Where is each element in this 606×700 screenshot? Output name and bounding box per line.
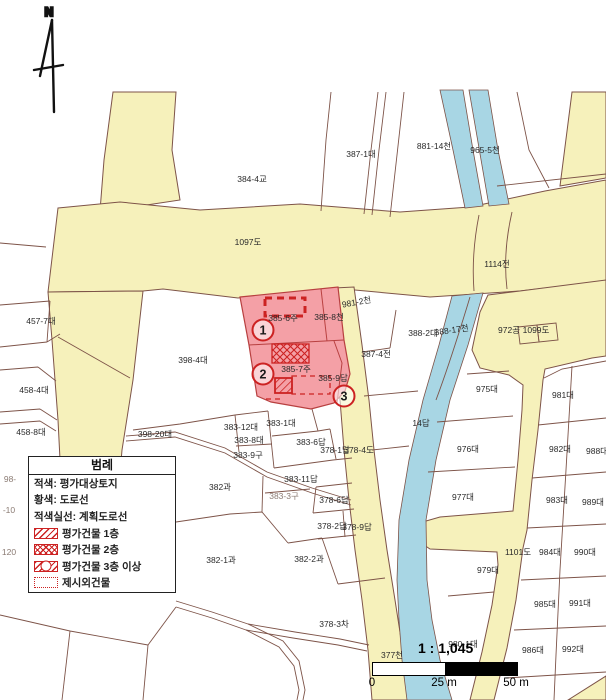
parcel-label: -10 bbox=[3, 505, 16, 515]
parcel-label: 977대 bbox=[452, 492, 474, 502]
parcel-label: 387-1대 bbox=[346, 149, 376, 159]
callout-number: 1 bbox=[260, 324, 267, 338]
parcel-label: 457-7대 bbox=[26, 316, 56, 326]
parcel-label: 1114전 bbox=[484, 259, 509, 269]
parcel-label: 385-8천 bbox=[314, 312, 344, 322]
parcel-label: 982대 bbox=[549, 444, 571, 454]
parcel-label: 383-8대 bbox=[234, 435, 264, 445]
parcel-label: 972공 bbox=[498, 325, 520, 335]
parcel-label: 991대 bbox=[569, 598, 591, 608]
parcel-label: 1101도 bbox=[505, 547, 531, 557]
legend-label: 평가건물 3층 이상 bbox=[62, 559, 141, 574]
parcel-label: 383-12대 bbox=[224, 422, 258, 432]
parcel-label: 988대 bbox=[586, 446, 606, 456]
parcel-label: 378-9답 bbox=[342, 522, 372, 532]
scale-tick-0: 0 bbox=[369, 677, 375, 689]
parcel-label: 992대 bbox=[562, 644, 584, 654]
legend-row: 평가건물 2층 bbox=[29, 541, 175, 558]
legend-swatch-hatch-cross bbox=[34, 544, 58, 555]
legend-label: 적색: 평가대상토지 bbox=[34, 476, 118, 491]
building-1f-hatch bbox=[275, 378, 292, 393]
legend-swatch-dotted-outline bbox=[34, 577, 58, 588]
swatch-circle-icon bbox=[41, 561, 52, 572]
scale-bar-black-segment bbox=[445, 663, 517, 675]
parcel-label: 382-1과 bbox=[206, 555, 236, 565]
scale-bar-white-segment bbox=[373, 663, 445, 675]
legend-row: 황색: 도로선 bbox=[29, 492, 175, 509]
parcel-label: 378-6답 bbox=[319, 495, 349, 505]
parcel-label: 975대 bbox=[476, 384, 498, 394]
parcel-label: 983대 bbox=[546, 495, 568, 505]
parcel-label: 985대 bbox=[534, 599, 556, 609]
legend: 범례 적색: 평가대상토지황색: 도로선적색실선: 계획도로선평가건물 1층평가… bbox=[28, 456, 176, 593]
scale-tick-25: 25 m bbox=[431, 677, 457, 689]
legend-row: 적색: 평가대상토지 bbox=[29, 475, 175, 492]
parcel-label: 98- bbox=[4, 474, 16, 484]
legend-label: 평가건물 1층 bbox=[62, 526, 119, 541]
legend-row: 평가건물 3층 이상 bbox=[29, 558, 175, 575]
parcel-label: 398-20대 bbox=[138, 429, 172, 439]
scale-ratio: 1 : 1,045 bbox=[418, 640, 473, 656]
legend-label: 제시외건물 bbox=[62, 575, 110, 590]
legend-title: 범례 bbox=[29, 457, 175, 475]
scale-bar-graphic bbox=[372, 662, 518, 676]
parcel-label: 387-4전 bbox=[361, 349, 391, 359]
parcel-label: 378-3차 bbox=[319, 619, 349, 629]
callout-3: 3 bbox=[334, 386, 355, 407]
callout-number: 2 bbox=[260, 368, 267, 382]
legend-rows: 적색: 평가대상토지황색: 도로선적색실선: 계획도로선평가건물 1층평가건물 … bbox=[29, 475, 175, 591]
legend-label: 평가건물 2층 bbox=[62, 542, 119, 557]
north-label: N bbox=[45, 5, 54, 19]
callout-number: 3 bbox=[341, 390, 348, 404]
cadastral-map-svg: 123 N387-1대881-14천965-5천384-4교1097도1114전… bbox=[0, 0, 606, 700]
cadastral-map-page: 123 N387-1대881-14천965-5천384-4교1097도1114전… bbox=[0, 0, 606, 700]
legend-row: 평가건물 1층 bbox=[29, 525, 175, 542]
parcel-label: 378-4도 bbox=[344, 445, 374, 455]
parcel-label: 989대 bbox=[582, 497, 604, 507]
parcel-label: 458-8대 bbox=[16, 427, 46, 437]
parcel-label: 981대 bbox=[552, 390, 574, 400]
parcel-label: 458-4대 bbox=[19, 385, 49, 395]
parcel-label: 384-4교 bbox=[237, 174, 267, 184]
callout-2: 2 bbox=[253, 364, 274, 385]
legend-row: 적색실선: 계획도로선 bbox=[29, 508, 175, 525]
legend-row: 제시외건물 bbox=[29, 575, 175, 592]
north-arrow bbox=[34, 20, 63, 112]
parcel-label: 385-9답 bbox=[318, 373, 348, 383]
parcel-label: 881-14천 bbox=[417, 141, 451, 151]
legend-swatch-hatch-circle bbox=[34, 561, 58, 572]
parcel-label: 984대 bbox=[539, 547, 561, 557]
legend-swatch-hatch-diagonal bbox=[34, 528, 58, 539]
parcel-label: 383-11답 bbox=[284, 474, 318, 484]
parcel-label: 14답 bbox=[412, 418, 429, 428]
parcel-label: 385-7주 bbox=[281, 364, 311, 374]
parcel-label: 979대 bbox=[477, 565, 499, 575]
parcel-label: 1099도 bbox=[523, 325, 550, 335]
parcel-label: 398-4대 bbox=[178, 355, 208, 365]
parcel-label: 965-5천 bbox=[470, 145, 500, 155]
scale-bar: 1 : 1,045 0 25 m 50 m bbox=[358, 638, 558, 698]
parcel-label: 990대 bbox=[574, 547, 596, 557]
parcel-label: 385-6주 bbox=[268, 313, 298, 323]
parcel-label: 383-1대 bbox=[266, 418, 296, 428]
legend-label: 적색실선: 계획도로선 bbox=[34, 509, 127, 524]
legend-label: 황색: 도로선 bbox=[34, 492, 89, 507]
parcel-label: 383-3구 bbox=[269, 491, 299, 501]
building-2f-crosshatch bbox=[272, 344, 309, 363]
parcel-label: 1097도 bbox=[235, 237, 262, 247]
scale-tick-50: 50 m bbox=[503, 677, 529, 689]
parcel-label: 382-2과 bbox=[294, 554, 324, 564]
parcel-label: 382과 bbox=[209, 482, 231, 492]
parcel-label: 976대 bbox=[457, 444, 479, 454]
parcel-label: 120 bbox=[2, 547, 16, 557]
parcel-label: 383-9구 bbox=[233, 450, 263, 460]
